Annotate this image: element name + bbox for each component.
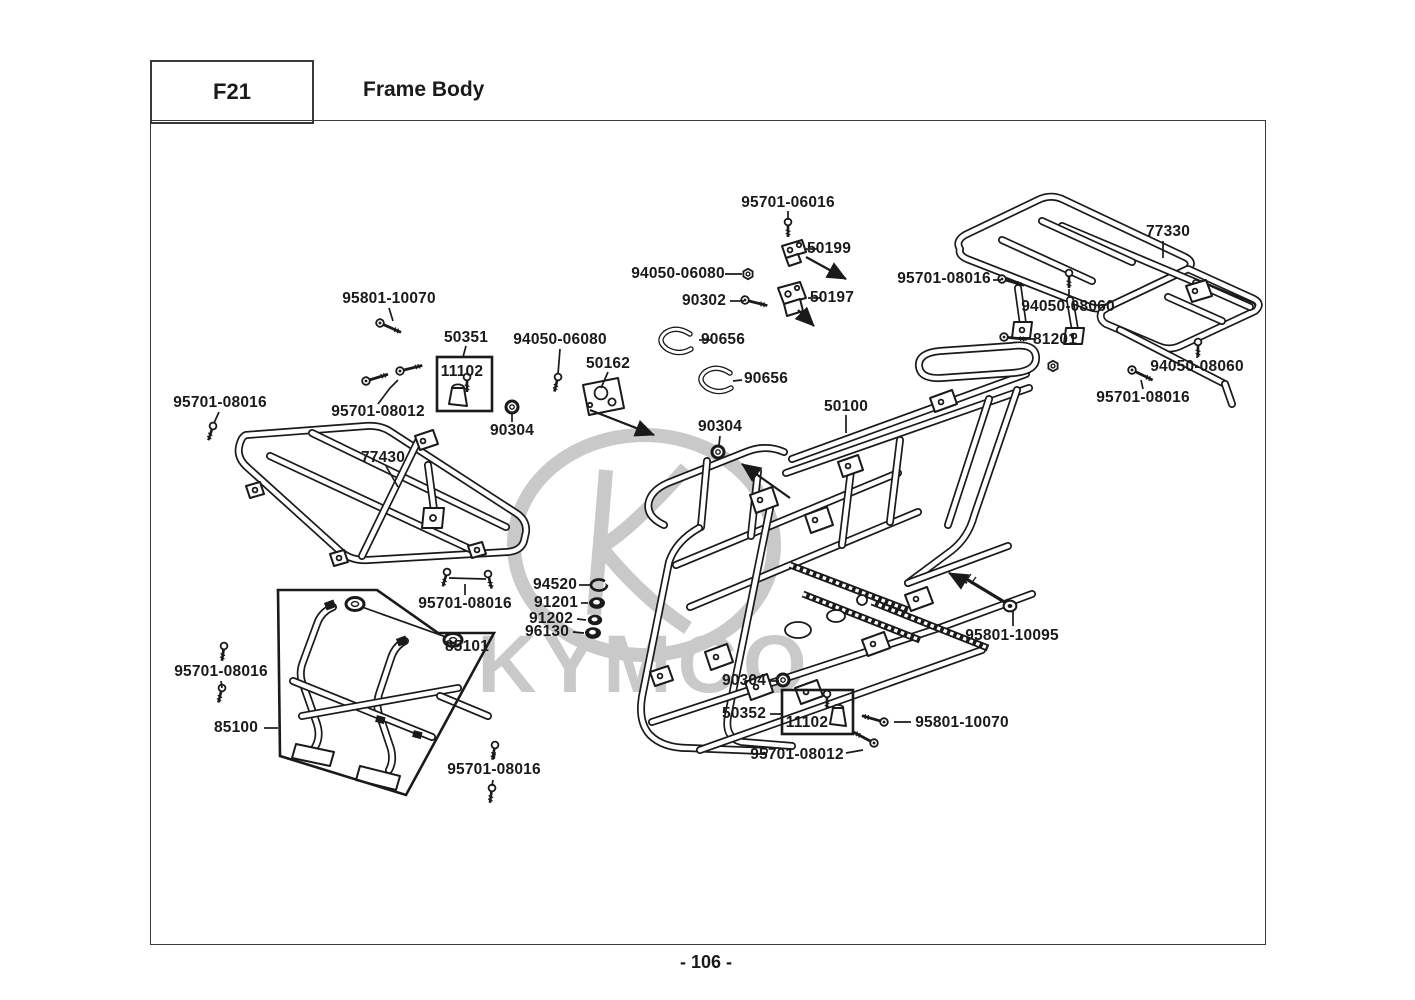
part-label: 81201 — [1033, 331, 1077, 349]
part-label: 90656 — [701, 331, 745, 349]
part-label: 90656 — [744, 370, 788, 388]
part-label: 94050-06080 — [513, 331, 607, 349]
part-label: 95801-10095 — [965, 627, 1059, 645]
part-label: 50199 — [807, 240, 851, 258]
frame-exploded-diagram: KYMCO — [0, 0, 1415, 1000]
part-label: 50100 — [824, 398, 868, 416]
part-label: 90304 — [490, 422, 534, 440]
front-rack-drawing — [239, 426, 526, 566]
part-label: 94520 — [533, 576, 577, 594]
part-label: 50197 — [810, 289, 854, 307]
part-label: 94050-08060 — [1150, 358, 1244, 376]
part-label: 85101 — [445, 638, 489, 656]
part-label: 50351 — [444, 329, 488, 347]
part-label: 95801-10070 — [342, 290, 436, 308]
part-label: 90304 — [722, 672, 766, 690]
page-number: - 106 - — [656, 952, 756, 973]
part-label: 95701-06016 — [741, 194, 835, 212]
part-label: 94050-06080 — [631, 265, 725, 283]
part-label: 77330 — [1146, 223, 1190, 241]
part-label: 95701-08016 — [447, 761, 541, 779]
part-label: 95701-08012 — [750, 746, 844, 764]
part-label: 95801-10070 — [915, 714, 1009, 732]
part-label: 90304 — [698, 418, 742, 436]
part-label: 95701-08016 — [1096, 389, 1190, 407]
part-label: 11102 — [441, 363, 483, 381]
part-label: 95701-08012 — [331, 403, 425, 421]
part-label: 96130 — [525, 623, 569, 641]
part-label: 90302 — [682, 292, 726, 310]
part-label: 50162 — [586, 355, 630, 373]
part-label: 95701-08016 — [418, 595, 512, 613]
part-label: 77430 — [361, 449, 405, 467]
part-label: 95701-08016 — [174, 663, 268, 681]
part-label: 50352 — [722, 705, 766, 723]
part-label: 95701-08016 — [897, 270, 991, 288]
part-label: 94050-08060 — [1021, 298, 1115, 316]
parts-catalog-page: F21 Frame Body — [0, 0, 1415, 1000]
part-label: 85100 — [214, 719, 258, 737]
part-label: 11102 — [786, 714, 828, 732]
part-label: 95701-08016 — [173, 394, 267, 412]
